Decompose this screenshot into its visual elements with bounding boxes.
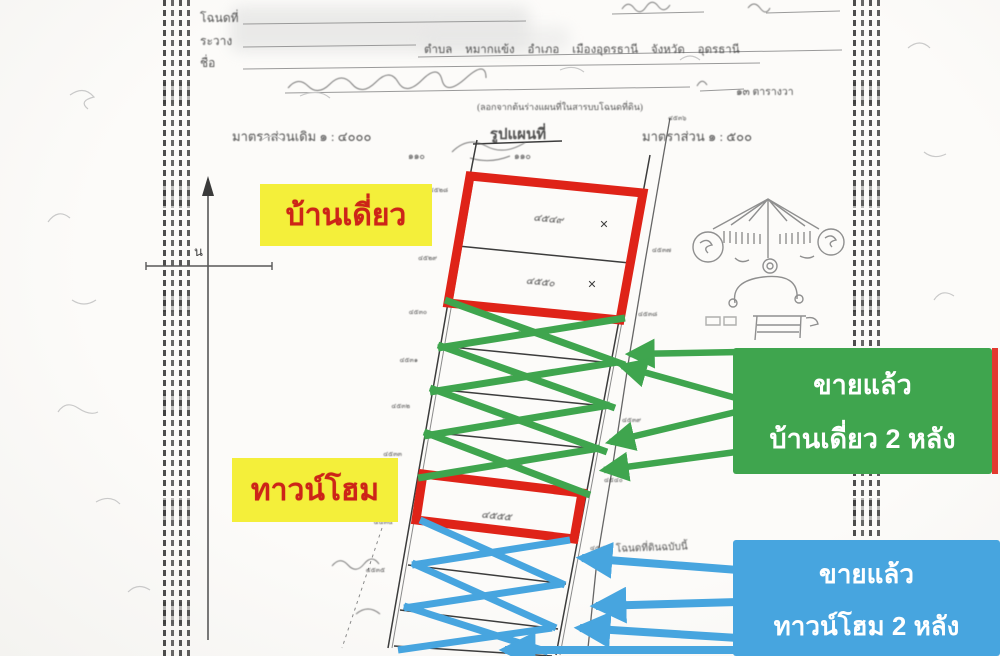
location-line: ตำบล หมากแข้ง อำเภอ เมืองอุดรธานี จังหวั… bbox=[424, 43, 740, 56]
badge-sold-detached-line2: บ้านเดี่ยว 2 หลัง bbox=[733, 412, 992, 466]
bottom-handwriting: โฉนดที่ดินฉบับนี้ bbox=[616, 538, 689, 555]
svg-text:๔๕๓๗: ๔๕๓๗ bbox=[652, 247, 671, 254]
boundary-road-line bbox=[588, 118, 670, 648]
svg-text:๔๕๔๐: ๔๕๔๐ bbox=[604, 477, 623, 484]
badge-sold-detached-line1: ขายแล้ว bbox=[733, 358, 992, 412]
tick-mid: ๑๑๐ bbox=[514, 151, 531, 161]
svg-text:๔๕๕๕: ๔๕๕๕ bbox=[481, 509, 514, 523]
label-townhome-text: ทาวน์โฮม bbox=[251, 467, 379, 514]
svg-text:๔๕๒๙: ๔๕๒๙ bbox=[418, 255, 437, 262]
svg-text:๔๕๓๐: ๔๕๓๐ bbox=[409, 309, 427, 316]
svg-text:๔๕๔๑: ๔๕๔๑ bbox=[590, 545, 609, 552]
badge-sold-townhome-line1: ขายแล้ว bbox=[733, 548, 1000, 600]
svg-text:๔๕๓๙: ๔๕๓๙ bbox=[622, 417, 641, 424]
badge-sold-detached: ขายแล้ว บ้านเดี่ยว 2 หลัง bbox=[733, 348, 992, 474]
label-detached-house: บ้านเดี่ยว bbox=[260, 184, 432, 246]
north-arrow: น bbox=[146, 176, 272, 640]
scale-old: มาตราส่วนเดิม ๑ : ๔๐๐๐ bbox=[232, 129, 371, 144]
tick-left: ๑๑๐ bbox=[408, 151, 425, 161]
north-letter: น bbox=[194, 244, 203, 259]
svg-text:๔๕๔๙: ๔๕๔๙ bbox=[533, 212, 566, 226]
pencil-doodle bbox=[693, 199, 844, 340]
copy-note: (ลอกจากต้นร่างแผนที่ในสารบบโฉนดที่ดิน) bbox=[477, 100, 643, 112]
name-label: ชื่อ bbox=[200, 54, 215, 70]
badge-sold-townhome-line2: ทาวน์โฮม 2 หลัง bbox=[733, 600, 1000, 652]
sheet-label: ระวาง bbox=[200, 34, 232, 48]
north-arrowhead bbox=[202, 176, 214, 196]
svg-text:๔๕๓๒: ๔๕๓๒ bbox=[391, 403, 410, 410]
pencil-cross-2: ✕ bbox=[587, 279, 596, 291]
label-detached-house-text: บ้านเดี่ยว bbox=[286, 192, 407, 239]
scanned-land-survey-page: โฉนดที่ ระวาง ชื่อ ตำบล หมากแข้ง อำเภอ เ… bbox=[0, 0, 1000, 656]
svg-text:๔๕๓๑: ๔๕๓๑ bbox=[400, 357, 418, 364]
green-arrows bbox=[604, 352, 740, 470]
pencil-cross-1: ✕ bbox=[599, 219, 608, 231]
svg-text:๔๕๓๕: ๔๕๓๕ bbox=[366, 567, 385, 574]
dashed-offshoot-line bbox=[342, 528, 382, 648]
area-note: ๑๓ ตารางวา bbox=[736, 87, 794, 98]
svg-text:๔๕๓๘: ๔๕๓๘ bbox=[638, 311, 657, 318]
label-townhome: ทาวน์โฮม bbox=[232, 458, 398, 522]
svg-text:๔๕๕๐: ๔๕๕๐ bbox=[525, 276, 556, 290]
svg-text:๔๕๓๓: ๔๕๓๓ bbox=[383, 451, 402, 458]
map-heading: รูปแผนที่ bbox=[490, 123, 546, 144]
scale-new: มาตราส่วน ๑ : ๕๐๐ bbox=[642, 129, 752, 144]
deed-label: โฉนดที่ bbox=[200, 9, 239, 25]
red-edge-strip bbox=[992, 348, 998, 474]
svg-text:๔๕๓๖: ๔๕๓๖ bbox=[668, 115, 686, 122]
badge-sold-townhome: ขายแล้ว ทาวน์โฮม 2 หลัง bbox=[733, 540, 1000, 656]
